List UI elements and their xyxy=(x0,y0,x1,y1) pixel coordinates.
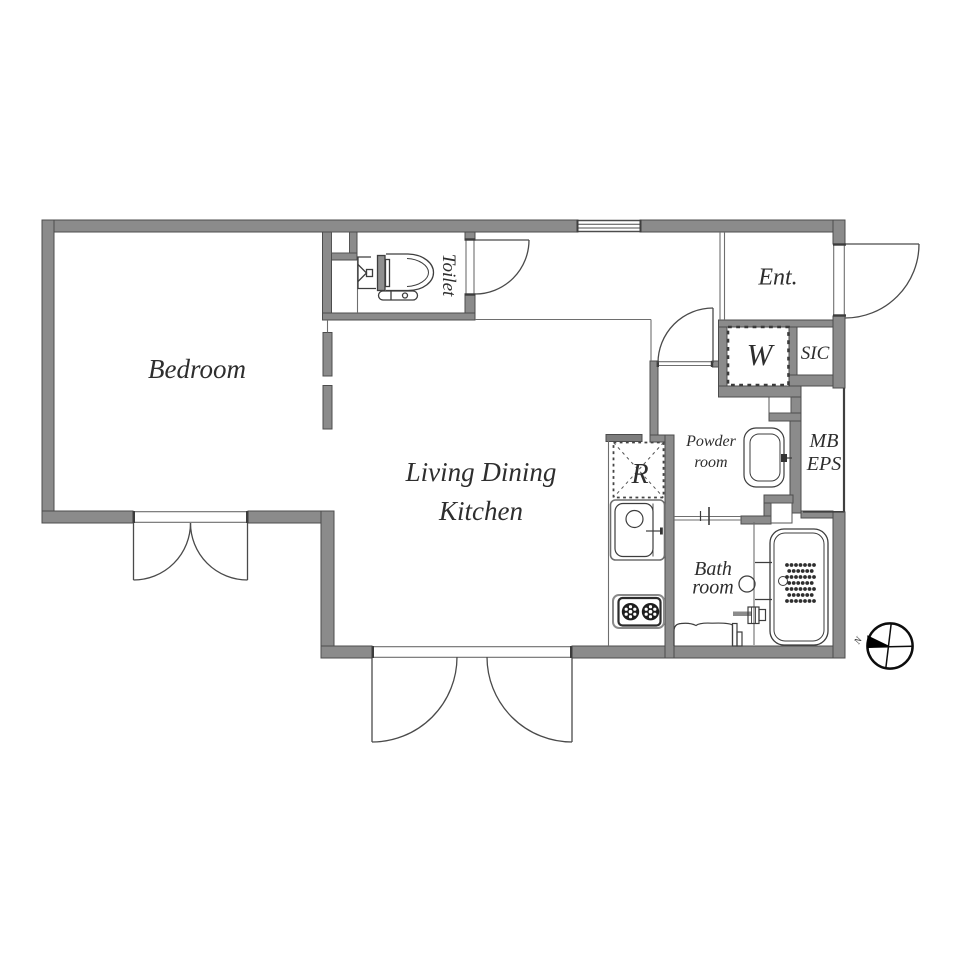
svg-text:EPS: EPS xyxy=(806,453,841,475)
svg-text:room: room xyxy=(692,577,733,599)
svg-text:room: room xyxy=(694,454,727,471)
svg-text:MB: MB xyxy=(809,430,839,452)
svg-text:SIC: SIC xyxy=(801,343,830,364)
svg-text:W: W xyxy=(747,337,776,372)
svg-text:Ent.: Ent. xyxy=(757,265,797,291)
svg-text:Kitchen: Kitchen xyxy=(438,496,523,526)
svg-text:Toilet: Toilet xyxy=(438,254,459,297)
svg-text:Bedroom: Bedroom xyxy=(148,354,246,384)
svg-text:Powder: Powder xyxy=(685,433,737,450)
svg-text:R: R xyxy=(630,459,648,490)
svg-text:Living Dining: Living Dining xyxy=(405,457,557,487)
